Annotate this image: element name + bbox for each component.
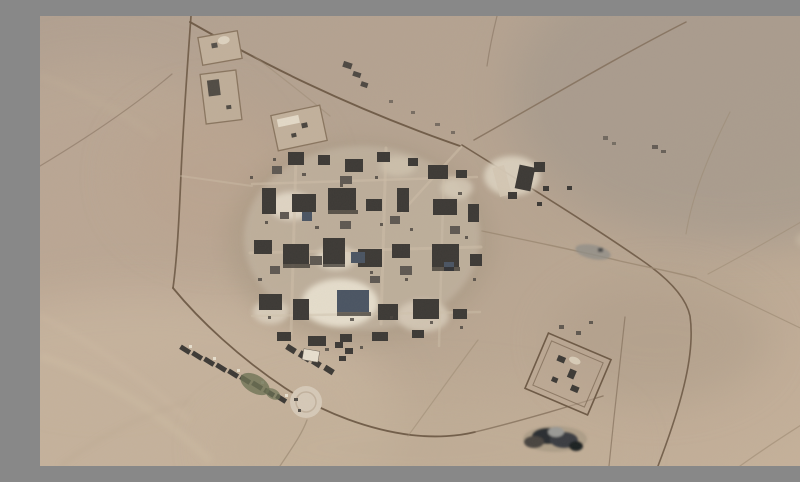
satellite-canvas (40, 16, 800, 466)
satellite-image (40, 16, 800, 466)
grain-overlay (40, 16, 800, 466)
